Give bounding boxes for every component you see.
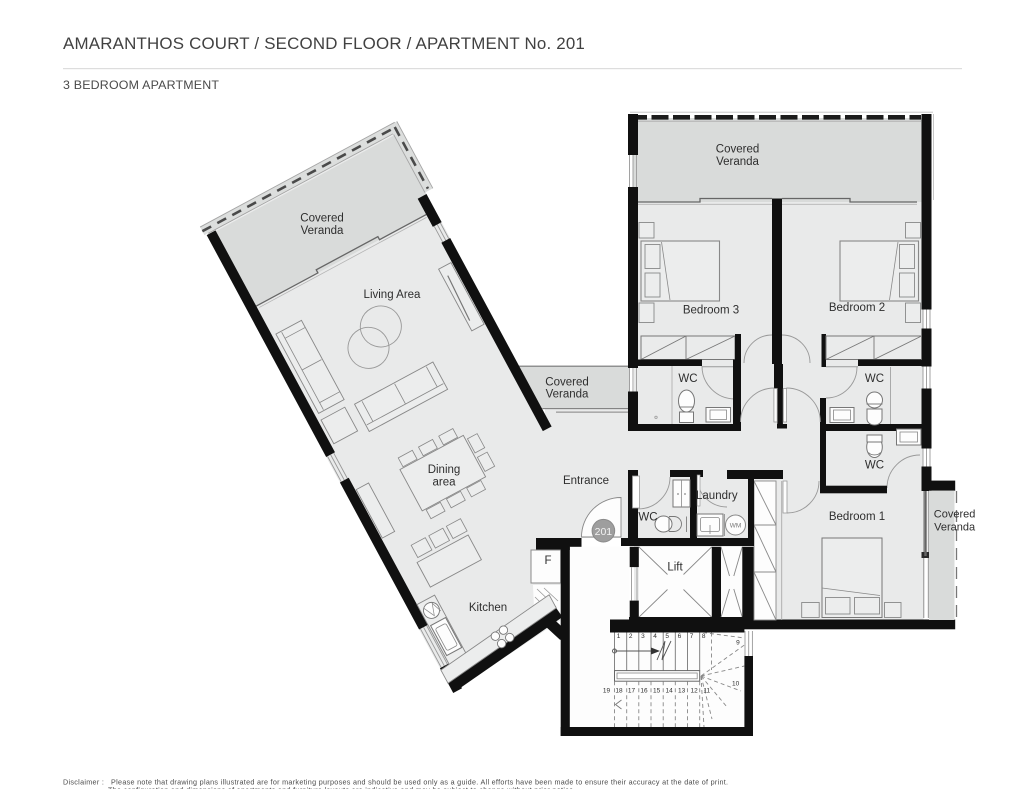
- svg-text:Veranda: Veranda: [546, 389, 589, 401]
- svg-text:Covered: Covered: [545, 377, 588, 389]
- svg-text:Dining: Dining: [428, 464, 461, 476]
- svg-text:14: 14: [665, 688, 673, 695]
- svg-text:Bedroom 3: Bedroom 3: [683, 305, 739, 317]
- svg-text:17: 17: [628, 688, 636, 695]
- svg-text:Veranda: Veranda: [934, 522, 976, 534]
- svg-text:WC: WC: [865, 373, 884, 385]
- svg-text:2: 2: [629, 633, 633, 640]
- svg-text:Kitchen: Kitchen: [469, 602, 507, 614]
- svg-text:Entrance: Entrance: [563, 475, 609, 487]
- svg-text:WC: WC: [638, 512, 657, 524]
- svg-text:Bedroom 1: Bedroom 1: [829, 511, 885, 523]
- svg-text:5: 5: [665, 633, 669, 640]
- svg-text:15: 15: [653, 688, 661, 695]
- svg-text:AMARANTHOS COURT / SECOND FLOO: AMARANTHOS COURT / SECOND FLOOR / APARTM…: [63, 34, 585, 53]
- svg-text:11: 11: [703, 688, 710, 695]
- svg-text:3: 3: [641, 633, 645, 640]
- svg-text:8: 8: [702, 633, 706, 640]
- svg-text:10: 10: [732, 681, 740, 688]
- svg-text:12: 12: [690, 688, 698, 695]
- svg-text:Veranda: Veranda: [716, 156, 759, 168]
- svg-text:1: 1: [617, 633, 621, 640]
- svg-text:7: 7: [690, 633, 694, 640]
- svg-text:Lift: Lift: [667, 562, 683, 574]
- svg-text:Covered: Covered: [934, 509, 976, 521]
- svg-text:18: 18: [615, 688, 623, 695]
- svg-text:WM: WM: [730, 523, 742, 530]
- svg-text:Living Area: Living Area: [364, 289, 422, 301]
- svg-text:F: F: [544, 555, 551, 567]
- svg-text:WC: WC: [865, 460, 884, 472]
- svg-text:Covered: Covered: [716, 144, 759, 156]
- svg-text:16: 16: [640, 688, 648, 695]
- svg-text:13: 13: [678, 688, 686, 695]
- svg-text:The configuration and dimensio: The configuration and dimensions of apar…: [108, 786, 576, 789]
- svg-text:201: 201: [595, 526, 613, 538]
- svg-text:area: area: [432, 476, 456, 488]
- svg-text:Covered: Covered: [300, 213, 343, 225]
- svg-text:Bedroom 2: Bedroom 2: [829, 302, 885, 314]
- svg-text:Veranda: Veranda: [301, 225, 344, 237]
- svg-text:9: 9: [736, 640, 740, 647]
- svg-text:19: 19: [603, 688, 611, 695]
- svg-text:6: 6: [678, 633, 682, 640]
- svg-text:WC: WC: [678, 373, 697, 385]
- svg-text:Laundry: Laundry: [696, 490, 738, 502]
- svg-text:4: 4: [653, 633, 657, 640]
- svg-text:3 BEDROOM APARTMENT: 3 BEDROOM APARTMENT: [63, 78, 219, 92]
